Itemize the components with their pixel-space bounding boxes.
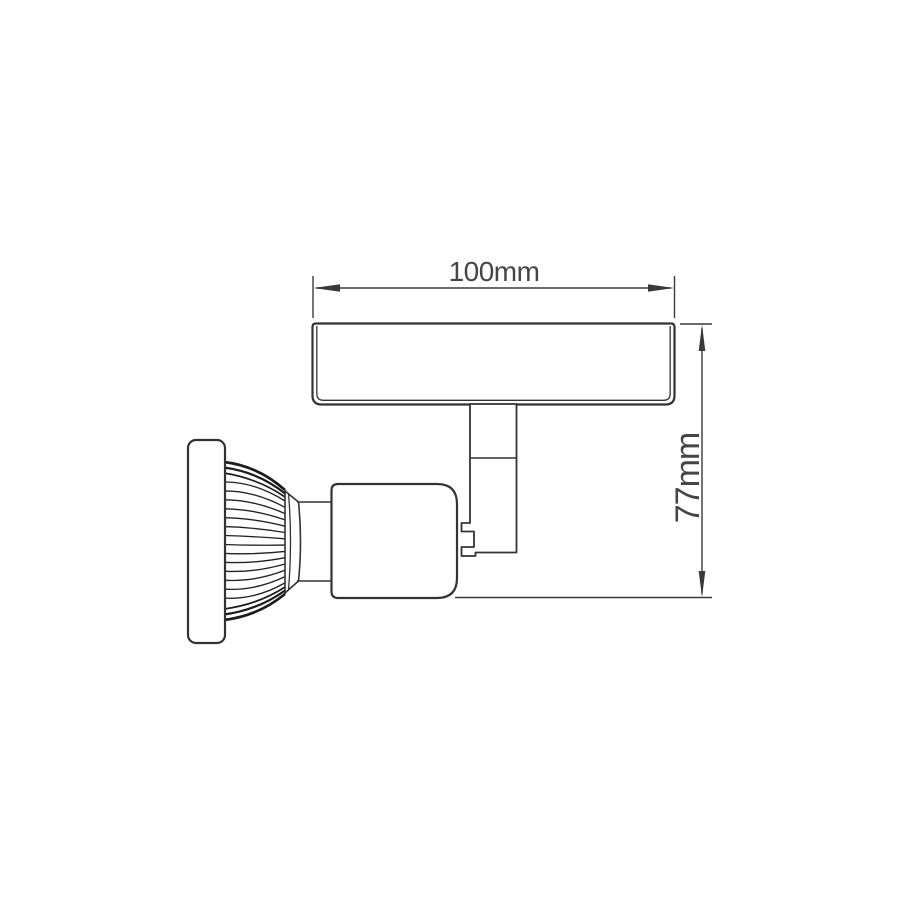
heatsink-fins xyxy=(224,462,291,620)
lamp-body-outline xyxy=(332,484,458,598)
fin-inner-curve xyxy=(289,493,291,590)
width-dimension-label: 100mm xyxy=(449,256,540,287)
arrow-down-icon xyxy=(699,571,706,598)
canopy-plate xyxy=(313,324,675,405)
width-dimension: 100mm xyxy=(313,256,675,318)
arrow-right-icon xyxy=(648,284,674,292)
lamp-holder-body xyxy=(332,484,458,598)
stem-outline xyxy=(462,404,517,556)
collar-top-slant xyxy=(285,491,299,502)
mounting-stem xyxy=(462,404,517,556)
canopy-plate-outline xyxy=(313,324,675,405)
collar-right-edge xyxy=(299,502,301,581)
height-dimension-label: 77mm xyxy=(669,433,707,523)
drawing-page: 100mm 77mm xyxy=(0,0,910,910)
bezel-outline xyxy=(188,440,225,643)
fin-line xyxy=(224,545,285,546)
arrow-up-icon xyxy=(699,325,706,352)
front-bezel xyxy=(188,440,225,643)
arrow-left-icon xyxy=(314,284,341,292)
technical-drawing: 100mm 77mm xyxy=(0,0,910,910)
collar-bottom-slant xyxy=(285,581,299,593)
lamp-neck xyxy=(285,491,333,593)
